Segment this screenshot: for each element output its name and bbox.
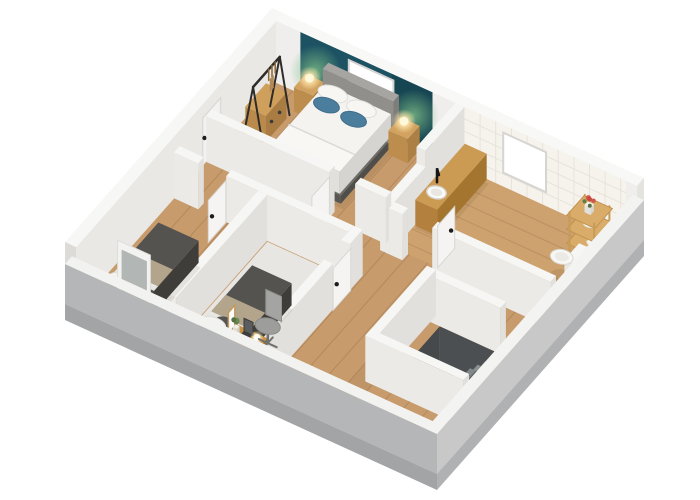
dresser-knob-1	[278, 111, 282, 115]
bath-south-wall-west-east-face	[402, 208, 408, 260]
bath-south-wall-west-south-face	[389, 208, 402, 260]
floor-plan-3d-render	[0, 0, 700, 500]
desk-plant-leaf-3	[231, 317, 236, 322]
master-south-wall-west-east-face	[329, 166, 335, 218]
lamp-right-core	[400, 117, 409, 126]
flower-red-2	[587, 197, 592, 202]
lamp-left-core	[305, 74, 314, 83]
dresser-knob-2	[270, 120, 274, 124]
flower-red-3	[591, 199, 595, 203]
flower-leaf-2	[588, 204, 592, 208]
flower-leaf-1	[583, 199, 587, 203]
se-exterior-wall-south-face	[426, 429, 437, 474]
left-bedroom-door-handle	[210, 214, 214, 218]
front-bedroom-door-handle	[335, 282, 339, 286]
bedrooms-north-wall-west-east-face	[198, 157, 204, 209]
bath-door-handle	[449, 228, 453, 232]
nw-door-handle	[202, 136, 206, 140]
floor-plan-canvas	[0, 0, 700, 500]
